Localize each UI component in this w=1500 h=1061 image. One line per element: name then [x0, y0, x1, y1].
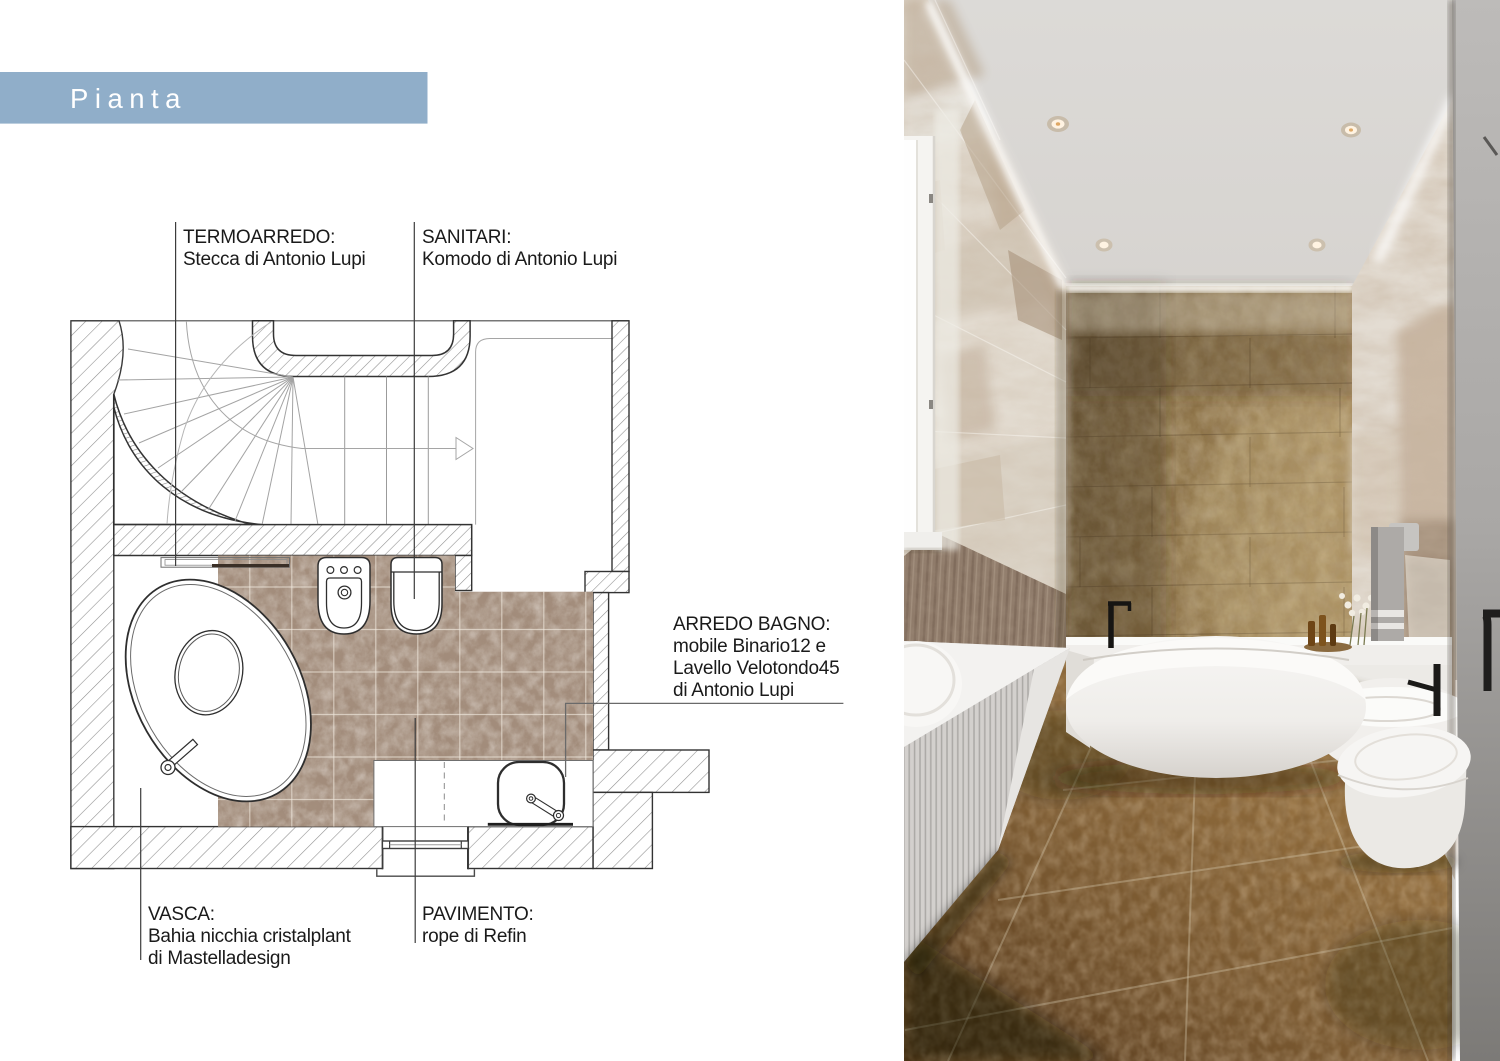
svg-text:ARREDO BAGNO:: ARREDO BAGNO: — [673, 614, 830, 635]
svg-text:PAVIMENTO:: PAVIMENTO: — [422, 904, 534, 925]
svg-text:Lavello Velotondo45: Lavello Velotondo45 — [673, 658, 839, 679]
svg-text:Pianta: Pianta — [70, 83, 187, 114]
svg-text:di Antonio Lupi: di Antonio Lupi — [673, 680, 794, 701]
svg-text:Bahia nicchia cristalplant: Bahia nicchia cristalplant — [148, 926, 352, 947]
svg-text:VASCA:: VASCA: — [148, 904, 215, 925]
svg-text:di Mastelladesign: di Mastelladesign — [148, 948, 291, 969]
svg-text:Stecca di Antonio Lupi: Stecca di Antonio Lupi — [183, 249, 366, 270]
svg-text:Komodo di Antonio Lupi: Komodo di Antonio Lupi — [422, 249, 617, 270]
svg-text:SANITARI:: SANITARI: — [422, 227, 511, 248]
svg-text:mobile Binario12 e: mobile Binario12 e — [673, 636, 826, 657]
svg-text:rope di Refin: rope di Refin — [422, 926, 526, 947]
svg-text:TERMOARREDO:: TERMOARREDO: — [183, 227, 335, 248]
